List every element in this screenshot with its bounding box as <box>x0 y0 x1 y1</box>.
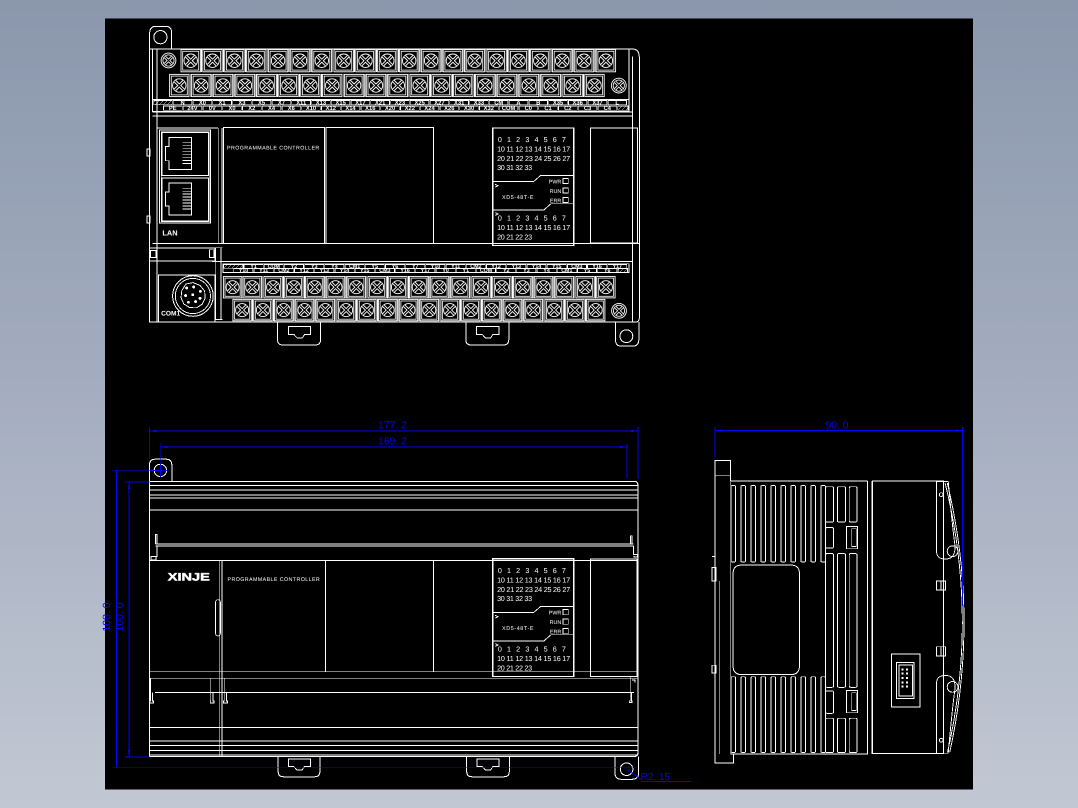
svg-text:CM1: CM1 <box>561 268 572 274</box>
svg-text:0 1 2 3 4 5 6 7: 0 1 2 3 4 5 6 7 <box>498 645 566 654</box>
svg-text:Y14: Y14 <box>532 264 541 270</box>
svg-text:Y12: Y12 <box>299 268 308 274</box>
svg-text:Y5: Y5 <box>584 268 591 274</box>
svg-text:RUN: RUN <box>550 189 562 195</box>
svg-text:X3: X3 <box>238 100 246 107</box>
svg-text:Y2: Y2 <box>503 268 510 274</box>
svg-text:0V: 0V <box>209 105 216 112</box>
svg-text:CM3: CM3 <box>379 268 390 274</box>
svg-text:X24: X24 <box>424 105 435 112</box>
svg-text:PE: PE <box>169 106 177 112</box>
svg-text:Y15: Y15 <box>552 264 561 270</box>
svg-text:X10: X10 <box>306 105 316 112</box>
svg-text:X26: X26 <box>444 105 455 112</box>
svg-text:C3: C3 <box>584 105 592 112</box>
svg-text:X27: X27 <box>434 100 444 107</box>
svg-text:Y16: Y16 <box>592 264 601 270</box>
svg-text:0 1 2 3 4 5 6 7: 0 1 2 3 4 5 6 7 <box>498 214 566 223</box>
svg-text:30 31 32 33: 30 31 32 33 <box>497 594 532 603</box>
svg-text:10 11 12 13 14 15 16 17: 10 11 12 13 14 15 16 17 <box>497 654 570 663</box>
svg-text:X36: X36 <box>573 100 584 107</box>
svg-text:Y5: Y5 <box>372 264 379 270</box>
svg-text:Y13: Y13 <box>512 264 521 270</box>
svg-text:C1: C1 <box>544 105 552 112</box>
svg-text:PWR: PWR <box>549 180 562 186</box>
svg-text:PROGRAMMABLE CONTROLLER: PROGRAMMABLE CONTROLLER <box>228 577 321 583</box>
svg-text:COM: COM <box>480 268 493 274</box>
svg-text:COM: COM <box>502 105 516 112</box>
svg-text:Y10: Y10 <box>239 268 248 274</box>
svg-text:XD5-48T-E: XD5-48T-E <box>502 626 534 632</box>
svg-text:X0: X0 <box>228 105 235 112</box>
svg-text:PWR: PWR <box>549 611 562 617</box>
svg-text:169. 2: 169. 2 <box>378 437 407 448</box>
svg-text:RUN: RUN <box>550 620 562 626</box>
svg-text:X20: X20 <box>385 105 395 112</box>
svg-text:Y0: Y0 <box>442 268 449 274</box>
svg-text:Y12: Y12 <box>491 264 500 270</box>
svg-text:COM1: COM1 <box>161 311 180 318</box>
svg-text:Y10: Y10 <box>431 264 440 270</box>
svg-text:R2. 15: R2. 15 <box>641 772 671 783</box>
svg-text:X22: X22 <box>405 105 415 112</box>
svg-text:90. 0: 90. 0 <box>826 420 849 431</box>
svg-text:0 1 2 3 4 5 6 7: 0 1 2 3 4 5 6 7 <box>498 566 566 575</box>
svg-text:X37: X37 <box>592 100 602 107</box>
svg-text:20 21 22 23: 20 21 22 23 <box>497 663 532 672</box>
svg-text:X30: X30 <box>464 105 474 112</box>
svg-text:X4: X4 <box>268 106 276 112</box>
svg-text:C2: C2 <box>564 105 571 112</box>
svg-text:XD5-48T-E: XD5-48T-E <box>502 195 534 201</box>
svg-text:Y16: Y16 <box>400 268 409 274</box>
svg-text:X32: X32 <box>484 105 494 112</box>
svg-text:10 11 12 13 14 15 16 17: 10 11 12 13 14 15 16 17 <box>497 144 570 153</box>
svg-text:Y14: Y14 <box>340 268 349 274</box>
svg-text:PROGRAMMABLE CONTROLLER: PROGRAMMABLE CONTROLLER <box>227 145 320 151</box>
svg-text:Y4: Y4 <box>331 264 338 270</box>
svg-text:Y17: Y17 <box>421 268 430 274</box>
svg-text:10 11 12 13 14 15 16 17: 10 11 12 13 14 15 16 17 <box>497 223 570 232</box>
svg-text:20 21 22 23 24 25 26 27: 20 21 22 23 24 25 26 27 <box>497 154 570 163</box>
svg-text:X6: X6 <box>288 105 296 112</box>
svg-text:XINJE: XINJE <box>168 571 210 583</box>
svg-text:Y2: Y2 <box>291 264 298 270</box>
svg-text:Y6: Y6 <box>604 268 611 274</box>
svg-text:Y4: Y4 <box>543 268 550 274</box>
svg-text:Y13: Y13 <box>320 268 329 274</box>
svg-text:X14: X14 <box>345 106 356 112</box>
svg-text:Y3: Y3 <box>523 268 530 274</box>
svg-text:Y3: Y3 <box>311 264 318 270</box>
svg-text:20 21 22 23: 20 21 22 23 <box>497 232 532 241</box>
svg-text:108. 0: 108. 0 <box>101 602 113 631</box>
svg-text:Y6: Y6 <box>392 264 399 270</box>
svg-text:X12: X12 <box>326 105 336 112</box>
svg-text:LAN: LAN <box>162 229 177 238</box>
svg-text:X2: X2 <box>248 105 255 112</box>
svg-text:20 21 22 23 24 25 26 27: 20 21 22 23 24 25 26 27 <box>497 585 570 594</box>
svg-text:X0: X0 <box>199 100 206 107</box>
svg-text:10 11 12 13 14 15 16 17: 10 11 12 13 14 15 16 17 <box>497 575 570 584</box>
svg-text:100. 0: 100. 0 <box>114 602 126 631</box>
svg-text:Y15: Y15 <box>360 268 369 274</box>
svg-text:177. 2: 177. 2 <box>378 420 407 431</box>
svg-text:24V: 24V <box>187 105 197 112</box>
svg-text:Y7: Y7 <box>412 264 419 270</box>
svg-text:CM2: CM2 <box>278 268 289 274</box>
svg-text:C0: C0 <box>525 105 532 112</box>
svg-text:Y1: Y1 <box>463 268 470 274</box>
svg-text:Y1: Y1 <box>250 264 257 270</box>
svg-text:X16: X16 <box>365 105 376 112</box>
svg-text:Y11: Y11 <box>259 268 268 274</box>
svg-text:Y11: Y11 <box>451 264 460 270</box>
svg-text:C4: C4 <box>604 105 612 112</box>
svg-text:CM1: CM1 <box>349 264 360 270</box>
svg-text:X35: X35 <box>553 100 564 107</box>
svg-text:CM3: CM3 <box>571 264 582 270</box>
svg-text:0 1 2 3 4 5 6 7: 0 1 2 3 4 5 6 7 <box>498 135 566 144</box>
svg-text:30 31 32 33: 30 31 32 33 <box>497 163 532 172</box>
